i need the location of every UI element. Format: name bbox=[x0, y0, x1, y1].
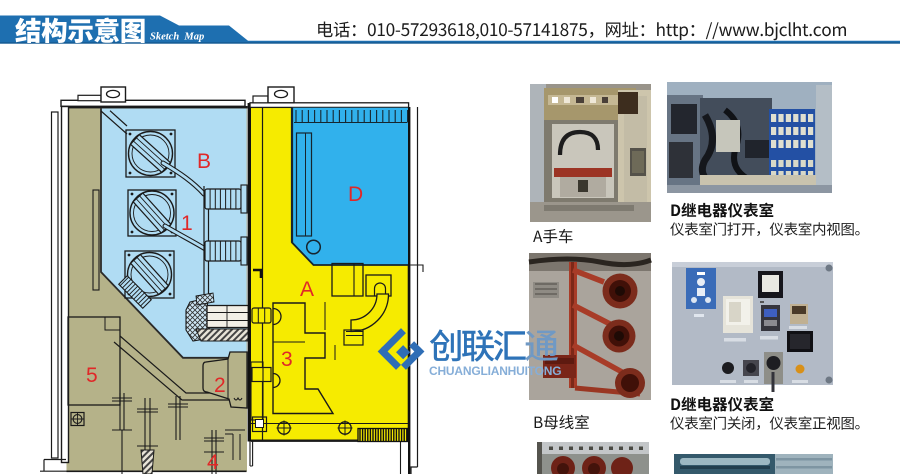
svg-text:1: 1 bbox=[181, 212, 193, 235]
svg-text:D: D bbox=[348, 183, 363, 206]
svg-text:4: 4 bbox=[207, 451, 219, 474]
svg-text:A: A bbox=[300, 278, 314, 301]
svg-text:Sketch Map: Sketch Map bbox=[150, 32, 204, 43]
svg-text:3: 3 bbox=[281, 348, 293, 371]
svg-text:5: 5 bbox=[86, 364, 98, 387]
svg-text:2: 2 bbox=[214, 374, 226, 397]
svg-text:CHUANGLIANHUITONG: CHUANGLIANHUITONG bbox=[429, 364, 561, 378]
svg-text:B: B bbox=[197, 150, 211, 173]
